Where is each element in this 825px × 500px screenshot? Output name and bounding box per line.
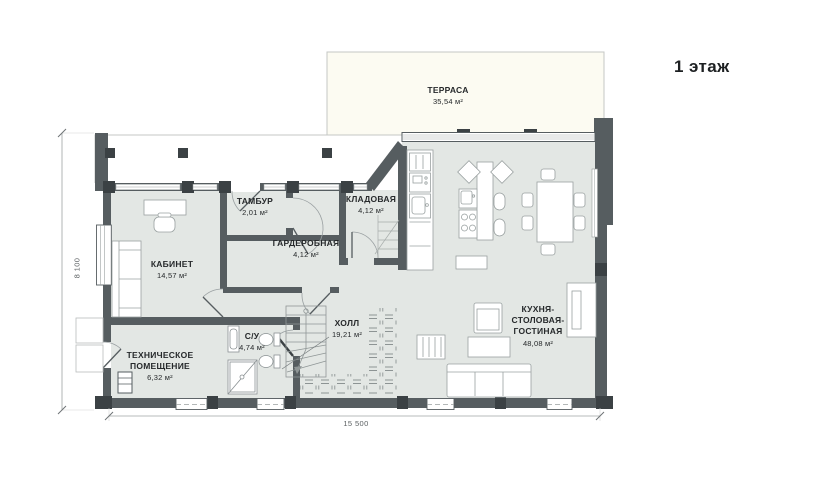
- dimension-label-width: 15 500: [343, 419, 368, 428]
- room-label-hall: ХОЛЛ 19,21 м²: [317, 318, 377, 339]
- room-name: ГАРДЕРОБНАЯ: [251, 238, 361, 249]
- dining-chair: [522, 216, 533, 230]
- room-label-vestibule: ТАМБУР 2,01 м²: [220, 196, 290, 217]
- desk-chair: [154, 217, 175, 232]
- room-label-terrace: ТЕРРАСА 35,54 м²: [398, 85, 498, 106]
- dimension-label-height: 8 100: [73, 258, 82, 279]
- dining-chair: [522, 193, 533, 207]
- room-label-office: КАБИНЕТ 14,57 м²: [132, 259, 212, 280]
- room-area: 2,01 м²: [220, 208, 290, 217]
- island-chair: [494, 219, 505, 236]
- room-area: 4,12 м²: [251, 250, 361, 259]
- dining-chair: [574, 193, 585, 207]
- room-area: 6,32 м²: [114, 373, 206, 382]
- room-area: 35,54 м²: [398, 97, 498, 106]
- room-area: 4,12 м²: [331, 206, 411, 215]
- room-label-wardrobe: ГАРДЕРОБНАЯ 4,12 м²: [251, 238, 361, 259]
- room-name: ХОЛЛ: [317, 318, 377, 329]
- room-name: КАБИНЕТ: [132, 259, 212, 270]
- office-window: [97, 225, 112, 285]
- page-title: 1 этаж: [674, 57, 730, 77]
- floor-plan-canvas: 1 этаж ТЕРРАСА 35,54 м² ТАМБУР 2,01 м² К…: [0, 0, 825, 500]
- entry-door-opening: [231, 183, 260, 193]
- exterior-stoop: [76, 318, 103, 343]
- room-label-bathroom: С/У 4,74 м²: [227, 331, 277, 352]
- bidet: [274, 355, 280, 368]
- room-label-utility: ТЕХНИЧЕСКОЕ ПОМЕЩЕНИЕ 6,32 м²: [114, 350, 206, 382]
- dining-chair: [541, 244, 555, 255]
- room-label-pantry: КЛАДОВАЯ 4,12 м²: [331, 194, 411, 215]
- room-name: ТАМБУР: [220, 196, 290, 207]
- dining-chair: [574, 216, 585, 230]
- room-area: 4,74 м²: [227, 343, 277, 352]
- fridge: [410, 153, 431, 171]
- dining-chair: [541, 169, 555, 180]
- room-name: КЛАДОВАЯ: [331, 194, 411, 205]
- room-name: ТЕРРАСА: [398, 85, 498, 96]
- room-name: С/У: [227, 331, 277, 342]
- room-label-kitchen-living: КУХНЯ-СТОЛОВАЯ-ГОСТИНАЯ 48,08 м²: [498, 304, 578, 348]
- room-name: ТЕХНИЧЕСКОЕ ПОМЕЩЕНИЕ: [114, 350, 206, 372]
- room-area: 14,57 м²: [132, 271, 212, 280]
- dining-table: [537, 182, 573, 242]
- canopy-outline: [95, 135, 327, 183]
- island-end-table: [456, 256, 487, 269]
- room-area: 48,08 м²: [498, 339, 578, 348]
- sofa: [447, 364, 531, 397]
- island-chair: [494, 193, 505, 210]
- room-name: КУХНЯ-СТОЛОВАЯ-ГОСТИНАЯ: [498, 304, 578, 338]
- room-area: 19,21 м²: [317, 330, 377, 339]
- corner-pier: [594, 118, 613, 142]
